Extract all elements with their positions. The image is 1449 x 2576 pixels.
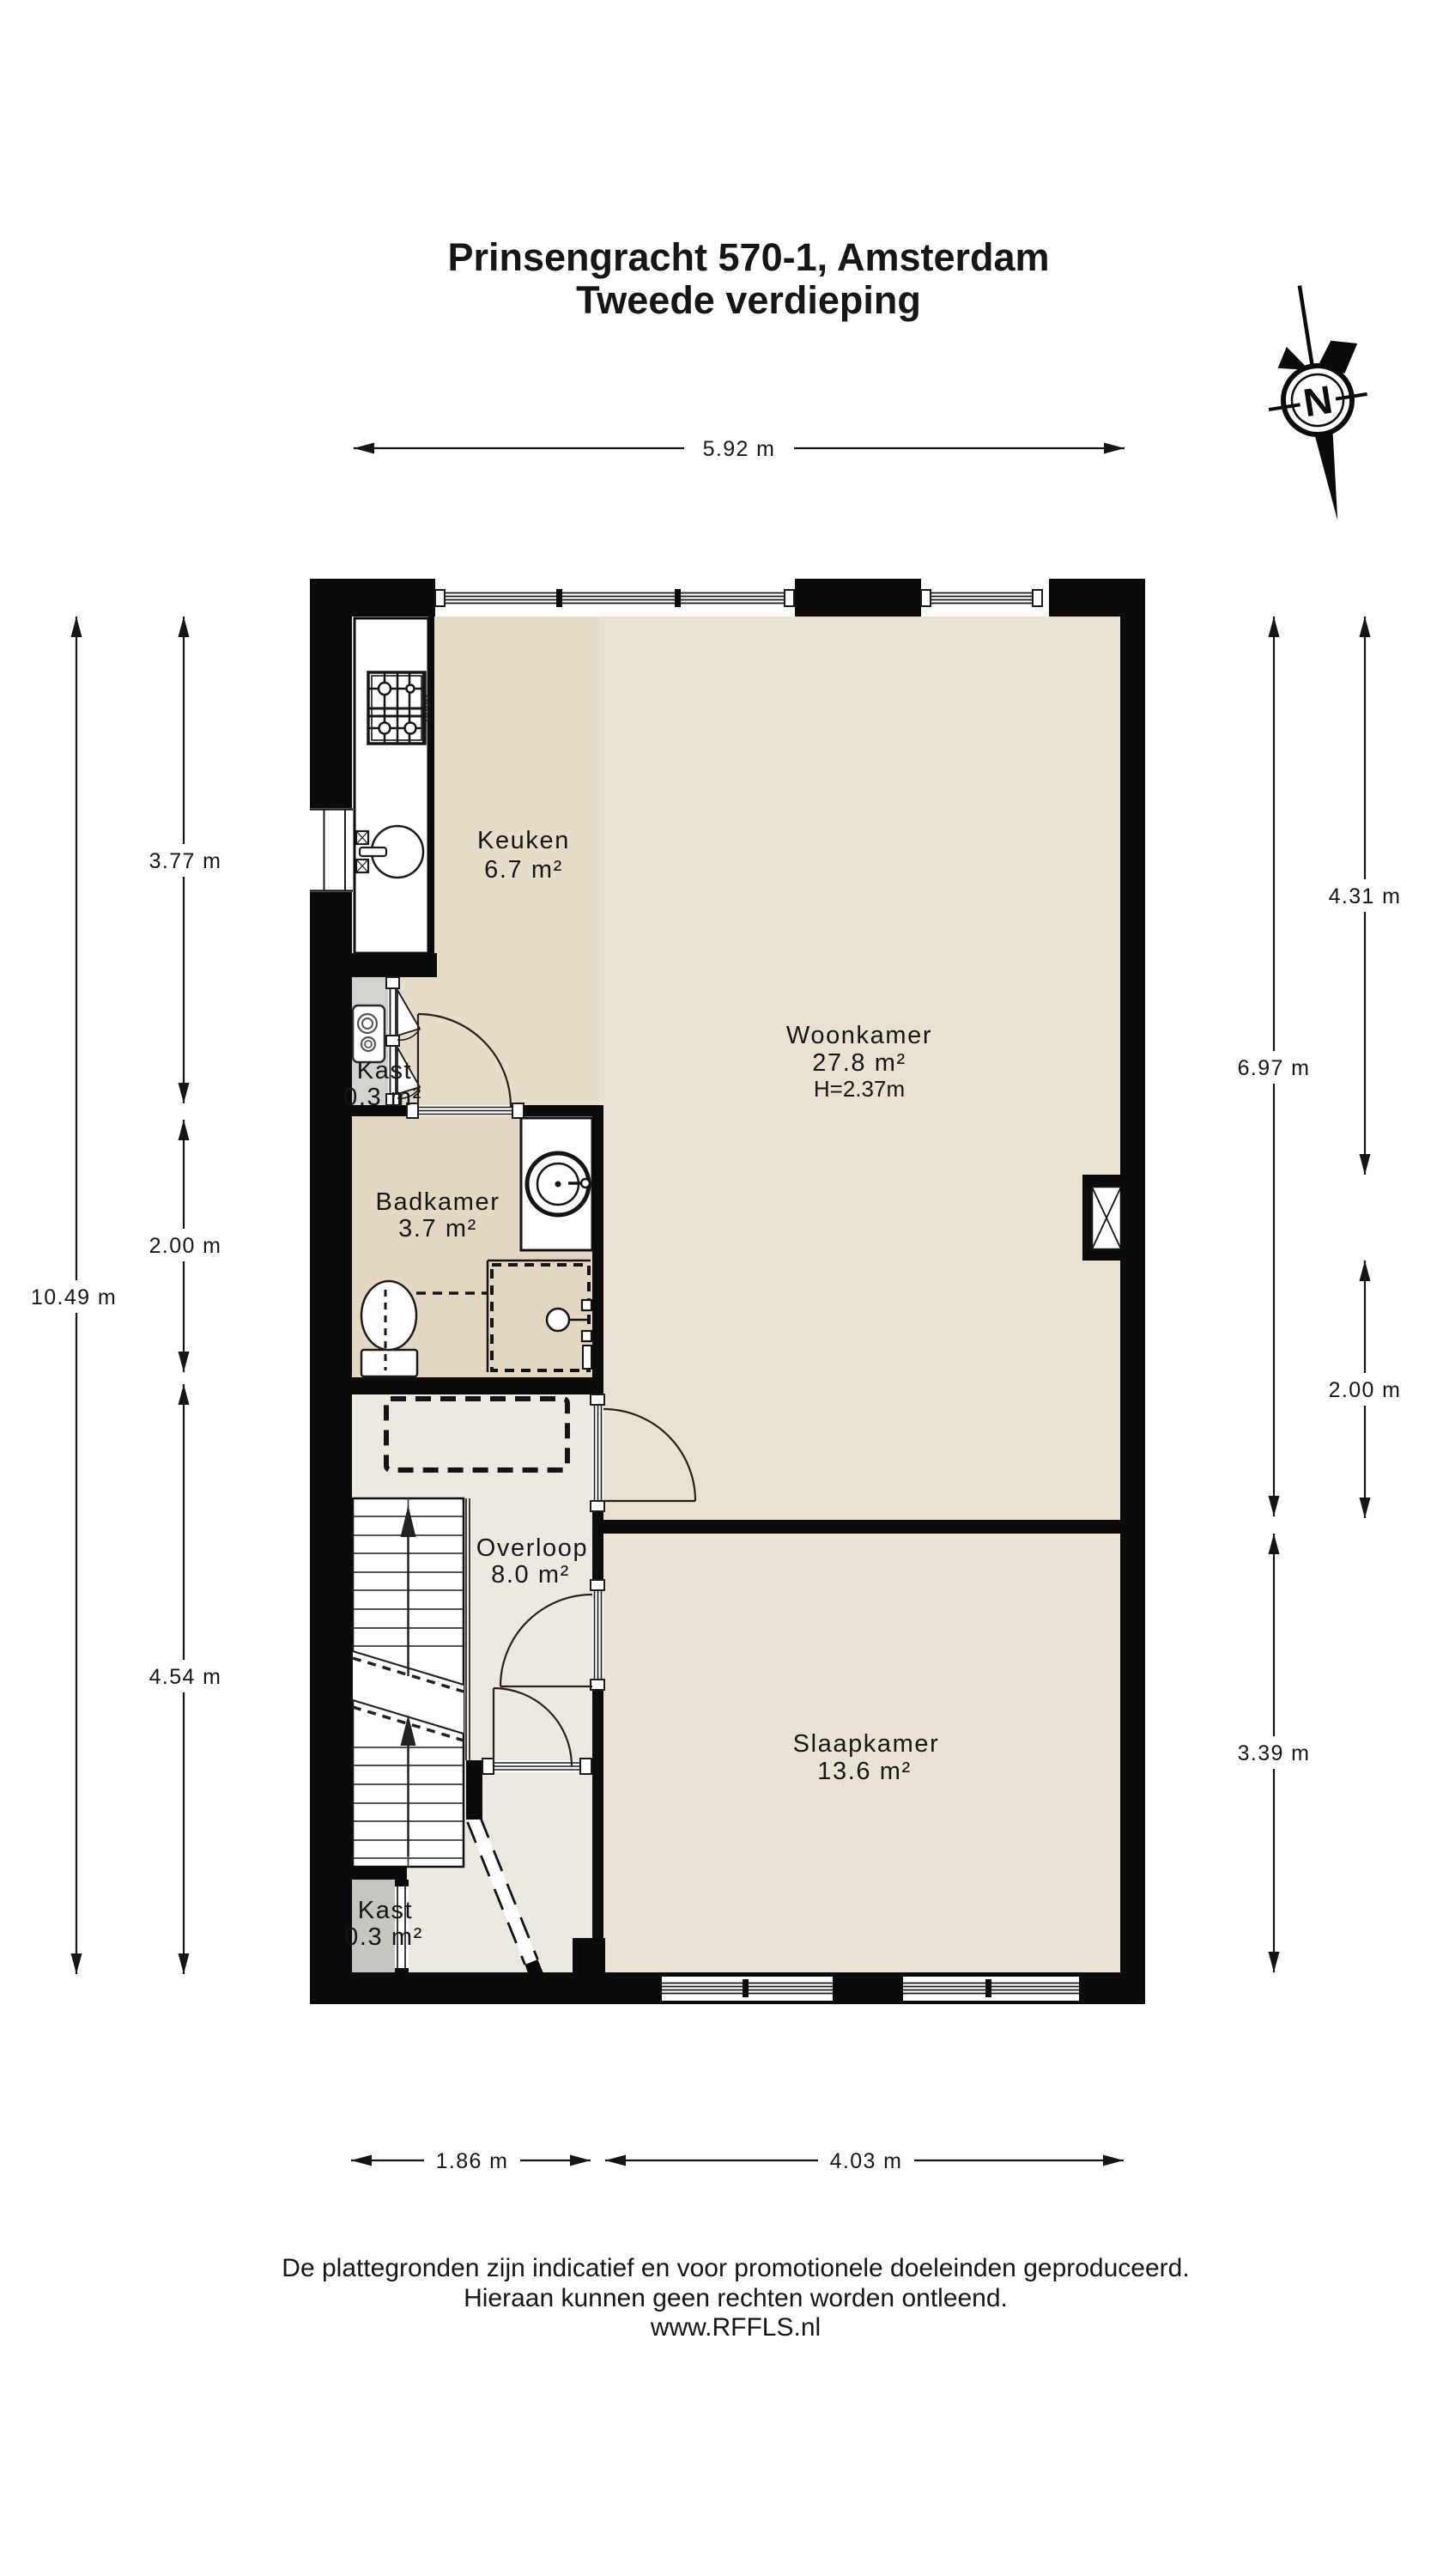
svg-text:Slaapkamer: Slaapkamer [793, 1730, 940, 1758]
svg-text:Tweede verdieping: Tweede verdieping [576, 278, 921, 322]
svg-text:Hieraan kunnen geen rechten wo: Hieraan kunnen geen rechten worden ontle… [464, 2284, 1008, 2312]
svg-text:2.00 m: 2.00 m [149, 1234, 222, 1258]
svg-text:1.86 m: 1.86 m [436, 2149, 509, 2173]
svg-text:3.39 m: 3.39 m [1238, 1741, 1311, 1765]
svg-text:8.0 m²: 8.0 m² [491, 1561, 570, 1589]
svg-text:Prinsengracht 570-1, Amsterdam: Prinsengracht 570-1, Amsterdam [447, 235, 1049, 279]
svg-text:10.49 m: 10.49 m [31, 1285, 117, 1309]
svg-text:0.3 m²: 0.3 m² [344, 1923, 423, 1951]
svg-text:De plattegronden zijn indicati: De plattegronden zijn indicatief en voor… [282, 2254, 1189, 2282]
svg-text:Kast: Kast [358, 1897, 413, 1924]
svg-text:H=2.37m: H=2.37m [814, 1076, 905, 1102]
svg-text:Keuken: Keuken [477, 827, 570, 854]
svg-text:4.03 m: 4.03 m [830, 2149, 903, 2173]
svg-text:6.7 m²: 6.7 m² [484, 856, 563, 884]
svg-text:6.97 m: 6.97 m [1238, 1056, 1311, 1080]
svg-text:3.7 m²: 3.7 m² [398, 1215, 477, 1242]
svg-text:5.92 m: 5.92 m [703, 437, 776, 461]
svg-text:13.6 m²: 13.6 m² [817, 1758, 912, 1785]
svg-text:Kast: Kast [357, 1057, 412, 1084]
svg-text:Badkamer: Badkamer [376, 1188, 500, 1216]
svg-text:Overloop: Overloop [476, 1534, 588, 1562]
svg-text:4.31 m: 4.31 m [1329, 884, 1402, 908]
svg-text:27.8 m²: 27.8 m² [812, 1049, 906, 1077]
svg-text:2.00 m: 2.00 m [1329, 1378, 1402, 1402]
svg-text:Woonkamer: Woonkamer [786, 1022, 932, 1049]
svg-text:0.3 m²: 0.3 m² [343, 1084, 422, 1111]
svg-text:3.77 m: 3.77 m [149, 849, 222, 873]
svg-text:www.RFFLS.nl: www.RFFLS.nl [650, 2313, 821, 2342]
svg-text:4.54 m: 4.54 m [149, 1665, 222, 1689]
